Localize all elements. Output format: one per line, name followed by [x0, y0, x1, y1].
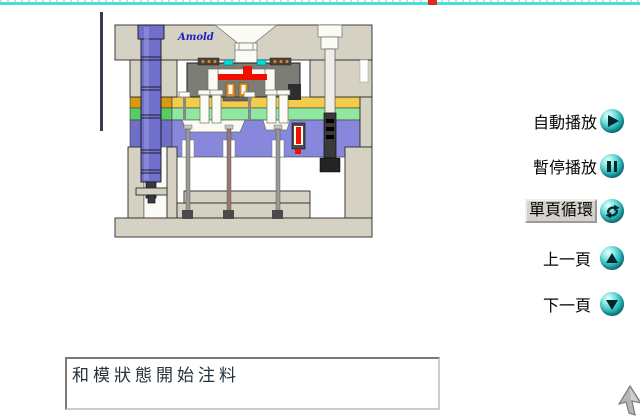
next-page-label: 下一頁 — [543, 292, 591, 316]
down-arrow-icon — [606, 300, 618, 310]
single-page-loop-label[interactable]: 單頁循環 — [525, 199, 597, 223]
menu-item-single-page-loop[interactable]: 單頁循環 — [525, 198, 624, 224]
pause-button[interactable] — [600, 154, 624, 178]
menu-item-auto-play[interactable]: 自動播放 — [533, 108, 624, 134]
play-button[interactable] — [600, 109, 624, 133]
frame-edge-strip — [100, 12, 103, 131]
amold-logo: Amold — [177, 32, 214, 43]
prev-page-button[interactable] — [600, 246, 624, 270]
prev-page-label: 上一頁 — [543, 246, 591, 270]
loop-button[interactable] — [600, 199, 624, 223]
app-window: Amold 自動播放 暫停播放 單頁循環 上一頁 下一頁 和模狀態開始注料 — [0, 0, 640, 419]
auto-play-label: 自動播放 — [533, 109, 597, 133]
play-icon — [608, 115, 619, 127]
status-text: 和模狀態開始注料 — [67, 359, 438, 388]
next-page-button[interactable] — [600, 292, 624, 316]
status-textbox[interactable]: 和模狀態開始注料 — [65, 357, 440, 410]
molten-plastic-bar — [218, 74, 267, 80]
marquee-line — [0, 2, 640, 5]
menu-item-prev-page[interactable]: 上一頁 — [543, 245, 624, 271]
mouse-cursor-icon — [616, 385, 640, 419]
loop-icon — [605, 204, 620, 219]
up-arrow-icon — [606, 253, 618, 263]
mold-animation: Amold — [100, 10, 380, 250]
menu-item-pause-play[interactable]: 暫停播放 — [533, 153, 624, 179]
marquee-red-dash — [428, 0, 437, 5]
menu-item-next-page[interactable]: 下一頁 — [543, 291, 624, 317]
pause-play-label: 暫停播放 — [533, 154, 597, 178]
pause-icon — [607, 161, 617, 172]
